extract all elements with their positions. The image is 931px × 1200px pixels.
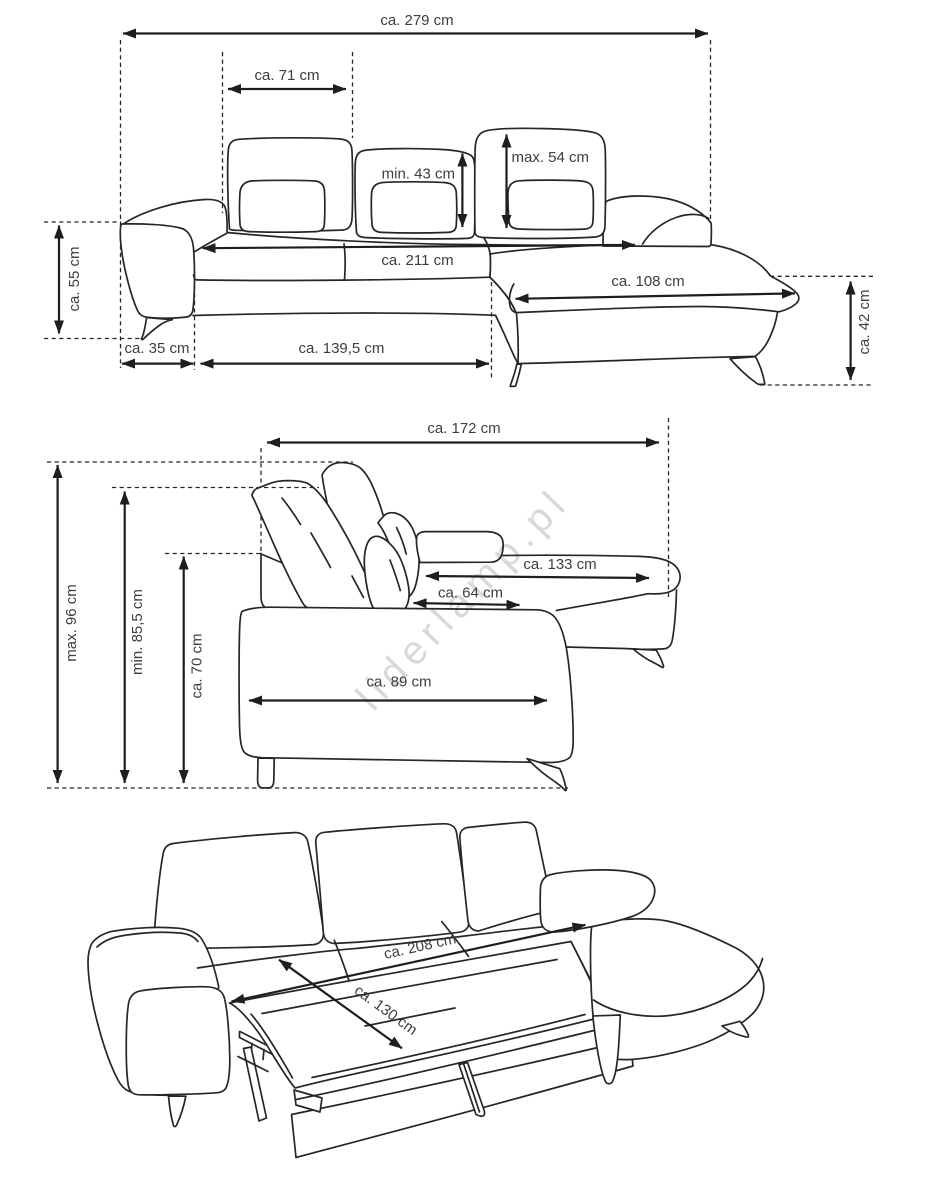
svg-text:min. 85,5 cm: min. 85,5 cm <box>129 589 146 675</box>
svg-text:ca. 55 cm: ca. 55 cm <box>66 246 83 311</box>
svg-text:ca. 108 cm: ca. 108 cm <box>611 273 684 290</box>
svg-text:ca. 70 cm: ca. 70 cm <box>189 633 206 698</box>
svg-text:ca. 35 cm: ca. 35 cm <box>124 340 189 357</box>
svg-text:max. 54 cm: max. 54 cm <box>512 149 590 166</box>
svg-text:ca. 71 cm: ca. 71 cm <box>254 67 319 84</box>
svg-text:max. 96 cm: max. 96 cm <box>63 584 80 662</box>
svg-text:ca. 139,5 cm: ca. 139,5 cm <box>299 340 385 357</box>
svg-text:ca. 42 cm: ca. 42 cm <box>856 289 873 354</box>
svg-text:ca. 211 cm: ca. 211 cm <box>381 252 453 269</box>
svg-text:min. 43 cm: min. 43 cm <box>382 166 455 183</box>
svg-text:ca. 172 cm: ca. 172 cm <box>427 420 500 437</box>
svg-text:ca. 279 cm: ca. 279 cm <box>380 12 453 29</box>
svg-text:ca. 64 cm: ca. 64 cm <box>438 585 503 602</box>
svg-text:ca. 133 cm: ca. 133 cm <box>523 556 596 573</box>
svg-text:ca. 89 cm: ca. 89 cm <box>366 674 431 691</box>
